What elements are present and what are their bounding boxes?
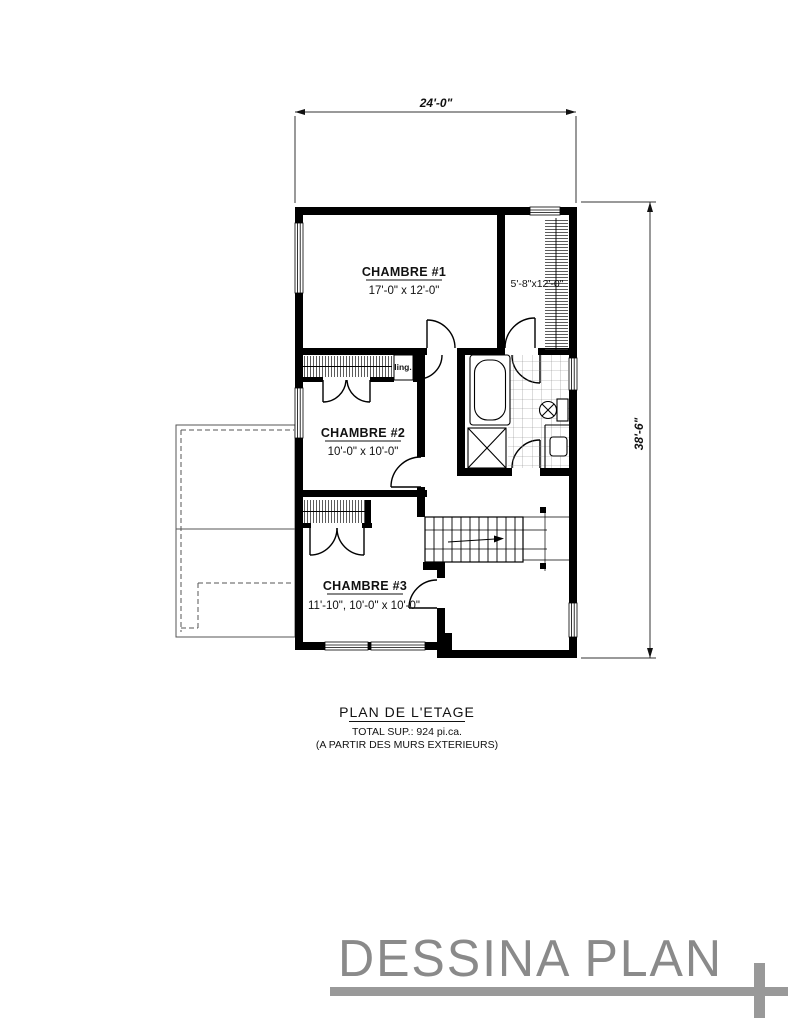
logo: DESSINA PLAN: [330, 930, 788, 1018]
logo-underline-bar: [330, 987, 788, 996]
window-bottom-chambre3-a: [325, 642, 368, 650]
title-block: PLAN DE L'ETAGE TOTAL SUP.: 924 pi.ca. (…: [316, 704, 498, 751]
staircase: [425, 507, 569, 571]
window-top-wall: [530, 207, 560, 215]
window-bottom-chambre3-b: [371, 642, 425, 650]
door-walkin-closet: [505, 318, 535, 348]
window-right-bathroom: [569, 358, 577, 390]
window-right-stairhall: [569, 603, 577, 637]
chambre1-name: CHAMBRE #1: [362, 265, 446, 279]
linen-cabinet: [468, 428, 506, 468]
detector-marker-top: [540, 507, 546, 513]
door-chambre3-closet: [310, 528, 364, 555]
chambre1-size: 17'-0" x 12'-0": [369, 285, 440, 297]
plan-note: (A PARTIR DES MURS EXTERIEURS): [316, 739, 498, 751]
floor-plan-drawing: 24'-0" 38'-6": [0, 0, 791, 1024]
dimension-top: [295, 109, 576, 203]
logo-text: DESSINA PLAN: [338, 930, 723, 988]
window-left-chambre2: [295, 388, 303, 438]
bathtub: [470, 355, 510, 425]
chambre3-size: 11'-10", 10'-0" x 10'-0": [308, 600, 420, 612]
garage-dashed-lines: [181, 430, 294, 632]
bathroom: [468, 355, 569, 468]
detector-marker-bottom: [540, 563, 546, 569]
logo-plus-icon: [754, 963, 765, 1018]
dimension-height-label: 38'-6": [632, 417, 646, 450]
chambre3-name: CHAMBRE #3: [323, 579, 407, 593]
garage-roof-outline: [176, 425, 295, 637]
chambre2-name: CHAMBRE #2: [321, 426, 405, 440]
plan-subtitle: TOTAL SUP.: 924 pi.ca.: [352, 726, 462, 738]
window-left-chambre1: [295, 223, 303, 293]
chambre2-size: 10'-0" x 10'-0": [328, 446, 399, 458]
door-chambre2-closet: [323, 380, 370, 402]
door-chambre2: [391, 457, 421, 487]
door-chambre1: [427, 320, 455, 348]
dimension-width-label: 24'-0": [419, 96, 453, 110]
walkin-closet-label: 5'-8"x12'-0": [511, 278, 564, 290]
linen-closet-label: ling.: [394, 362, 411, 372]
plan-title: PLAN DE L'ETAGE: [339, 704, 475, 720]
floor-plan-page: 24'-0" 38'-6": [0, 0, 791, 1024]
